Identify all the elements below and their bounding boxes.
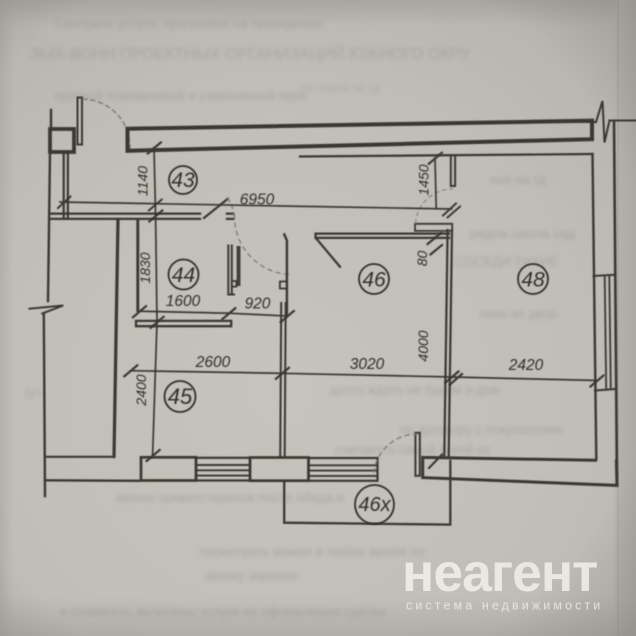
svg-text:ЗЫХ-ВОНН ПРОЕКТНЫХ ОРГАНИЗАЦИ: ЗЫХ-ВОНН ПРОЕКТНЫХ ОРГАНИЗАЦИЙ ЮЖНОГО ОК… (30, 44, 471, 63)
svg-text:посмотреть можно в любое время: посмотреть можно в любое время по (200, 544, 424, 559)
svg-text:Смотрите услуги, программа на: Смотрите услуги, программа на проведение (55, 16, 323, 31)
svg-text:2400: 2400 (133, 374, 149, 406)
svg-text:46х: 46х (358, 494, 391, 516)
svg-text:(уч: (уч (25, 385, 41, 399)
svg-text:1600: 1600 (166, 293, 201, 310)
svg-text:считается самой тихой из: считается самой тихой из (335, 442, 490, 457)
svg-text:1830: 1830 (137, 252, 153, 283)
svg-text:звонку заранее: звонку заранее (205, 568, 297, 583)
svg-text:неагент: неагент (402, 544, 597, 603)
svg-text:2600: 2600 (195, 354, 231, 371)
svg-text:43: 43 (171, 169, 195, 192)
svg-text:80: 80 (414, 251, 430, 267)
svg-text:система недвижимости: система недвижимости (406, 599, 603, 613)
svg-text:1140: 1140 (135, 166, 151, 196)
svg-text:6950: 6950 (240, 192, 275, 209)
svg-text:окна во двор: окна во двор (480, 306, 557, 321)
svg-text:920: 920 (245, 296, 271, 313)
svg-text:44: 44 (172, 264, 195, 287)
svg-text:3020: 3020 (350, 356, 385, 373)
svg-text:4000: 4000 (415, 330, 431, 361)
svg-text:48: 48 (521, 269, 545, 292)
svg-text:45: 45 (168, 384, 193, 409)
svg-text:1450: 1450 (416, 164, 432, 195)
svg-text:46: 46 (362, 269, 386, 292)
svg-text:звонки приветствуются после об: звонки приветствуются после обеда и (115, 490, 344, 505)
svg-text:долго ждать не будем и дом: долго ждать не будем и дом (330, 382, 500, 397)
svg-text:ние на тд: ние на тд (490, 172, 547, 187)
svg-text:2420: 2420 (508, 357, 544, 374)
svg-text:рядом школа сад: рядом школа сад (470, 226, 575, 241)
svg-text:по договору с покупателем: по договору с покупателем (400, 422, 563, 437)
svg-text:по смете за тд: по смете за тд (300, 81, 380, 95)
svg-text:в стоимость включены услуги по: в стоимость включены услуги по оформлени… (60, 604, 386, 619)
